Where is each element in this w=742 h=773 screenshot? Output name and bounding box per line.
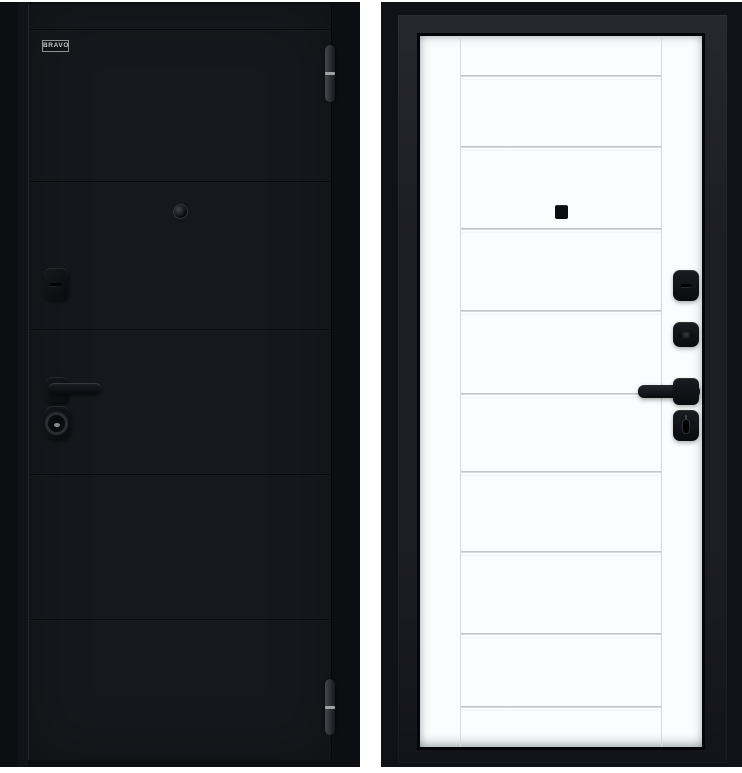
molding-groove <box>461 228 661 233</box>
hinge-band <box>325 706 335 709</box>
product-photo-entry-door: BRAVO <box>0 0 742 773</box>
molding-groove <box>461 393 661 398</box>
molding-groove <box>461 706 661 711</box>
molding-groove <box>461 471 661 476</box>
molding-panel-strip <box>460 36 662 747</box>
door-jamb-edge <box>18 2 28 767</box>
brand-logo: BRAVO <box>42 40 69 52</box>
thumbturn-escutcheon <box>673 410 699 441</box>
keyhole-slot <box>50 283 61 286</box>
lock-cover-middle <box>673 322 699 347</box>
hinge-bottom <box>325 679 335 735</box>
left-door-exterior-view: BRAVO <box>0 2 360 767</box>
lock-cover-top <box>673 270 699 301</box>
right-door-leaf <box>420 36 702 747</box>
molding-groove <box>461 551 661 556</box>
right-door-interior-view <box>381 2 742 767</box>
panel-groove <box>29 28 331 31</box>
peephole-icon <box>555 205 568 219</box>
left-door-leaf: BRAVO <box>28 4 332 760</box>
keyhole-slot <box>681 284 691 287</box>
panel-groove <box>29 328 331 331</box>
molding-groove <box>461 146 661 151</box>
panel-groove <box>29 180 331 183</box>
keyhole-oval <box>679 332 693 338</box>
lever-handle <box>49 383 101 394</box>
hinge-band <box>325 72 335 75</box>
panel-groove <box>29 473 331 476</box>
hinge-top <box>325 45 335 102</box>
molding-groove <box>461 633 661 638</box>
peephole-icon <box>173 204 188 219</box>
keyhole-cover <box>44 268 68 300</box>
molding-groove <box>461 75 661 80</box>
thumbturn-knob <box>682 419 690 434</box>
panel-groove <box>29 618 331 621</box>
handle-rose <box>673 378 699 405</box>
molding-groove <box>461 310 661 315</box>
keyhole-ring <box>45 412 68 435</box>
keyhole-glint <box>54 423 60 427</box>
